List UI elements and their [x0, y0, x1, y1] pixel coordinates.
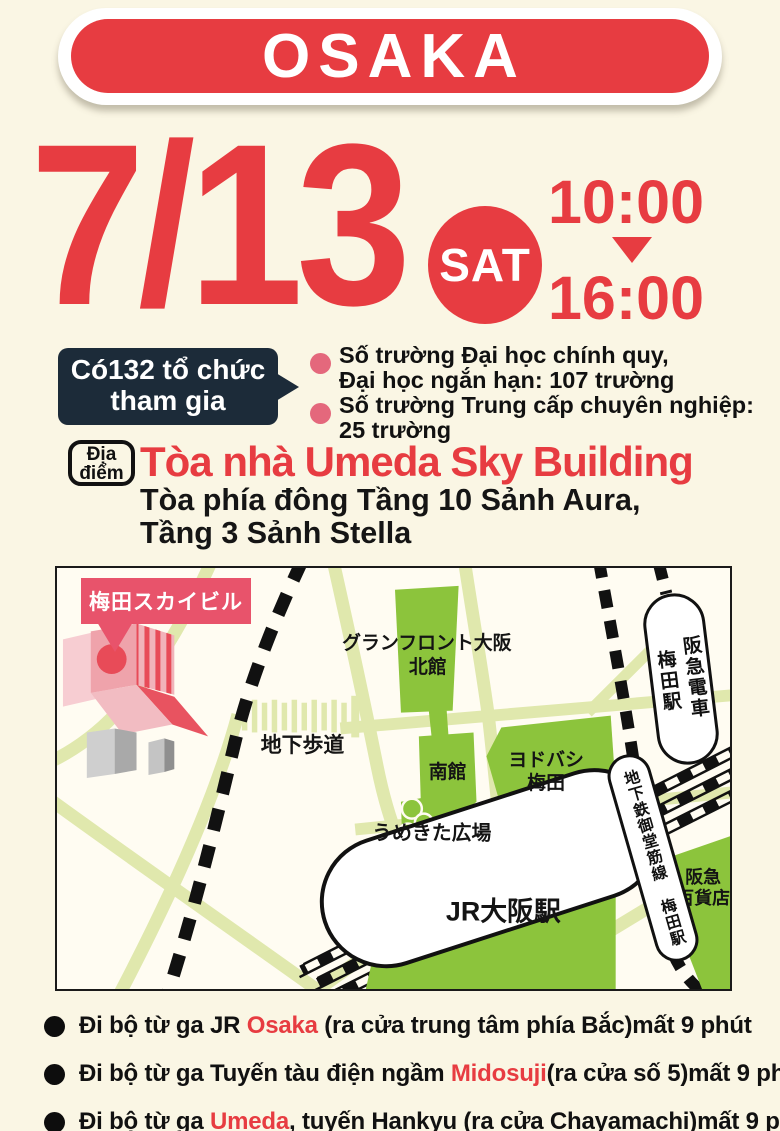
stat-text: Số trường Đại học chính quy, Đại học ngắ… [339, 343, 674, 393]
venue-badge-line1: Địa [72, 445, 131, 464]
grand-front-label: グランフロント大阪 [342, 631, 511, 653]
flyer-page: OSAKA 7/13 SAT 10:00 16:00 Có132 tổ chức… [0, 0, 780, 1131]
bullet-dot-icon [44, 1016, 65, 1037]
access-post: , tuyến Hankyu (ra cửa Chayamachi)mất 9 … [289, 1108, 780, 1131]
venue-badge: Địa điểm [68, 440, 135, 486]
jr-osaka-station-label: JR大阪駅 [446, 897, 561, 927]
list-item: Đi bộ từ ga Tuyến tàu điện ngầm Midosuji… [44, 1050, 780, 1098]
yodobashi-label-line2: 梅田 [527, 771, 565, 793]
badge-pointer-icon [276, 373, 299, 401]
access-text: Đi bộ từ ga JR Osaka (ra cửa trung tâm p… [79, 1012, 752, 1040]
access-pre: Đi bộ từ ga JR [79, 1012, 247, 1039]
bullet-dot-icon [44, 1112, 65, 1131]
hankyu-station-label: 阪急電車 梅田駅 [649, 634, 713, 724]
access-highlight: Osaka [247, 1012, 318, 1039]
weekday-badge: SAT [428, 206, 542, 324]
sky-building-pointer-icon [97, 622, 133, 652]
venue-name: Tòa nhà Umeda Sky Building [140, 438, 693, 486]
bullet-dot-icon [310, 403, 331, 424]
sky-building-label: 梅田スカイビル [81, 578, 251, 624]
venue-badge-line2: điểm [72, 464, 131, 483]
list-item: Số trường Trung cấp chuyên nghiệp: 25 tr… [310, 393, 778, 443]
access-pre: Đi bộ từ ga [79, 1108, 210, 1131]
weekday-label: SAT [439, 238, 531, 292]
access-post: (ra cửa số 5)mất 9 phút [547, 1060, 780, 1087]
stat-line: Số trường Đại học chính quy, [339, 343, 674, 368]
event-date: 7/13 [30, 110, 404, 340]
arrow-down-icon [612, 237, 652, 263]
osaka-banner: OSAKA [58, 8, 722, 105]
school-stats: Số trường Đại học chính quy, Đại học ngắ… [310, 343, 778, 443]
access-text: Đi bộ từ ga Tuyến tàu điện ngầm Midosuji… [79, 1060, 780, 1088]
osaka-banner-plate: OSAKA [71, 19, 709, 93]
stat-text: Số trường Trung cấp chuyên nghiệp: 25 tr… [339, 393, 754, 443]
participants-badge: Có132 tổ chức tham gia [58, 348, 278, 425]
access-highlight: Umeda [210, 1108, 289, 1131]
list-item: Số trường Đại học chính quy, Đại học ngắ… [310, 343, 778, 393]
stat-line: Số trường Trung cấp chuyên nghiệp: [339, 393, 754, 418]
participants-badge-line1: Có132 tổ chức [58, 354, 278, 385]
venue-detail: Tòa phía đông Tầng 10 Sảnh Aura, Tầng 3 … [140, 484, 640, 550]
hankyu-dept-label-line1: 阪急 [685, 866, 721, 887]
north-building-label: 北館 [409, 655, 447, 677]
umeda-sky-building-illustration [63, 623, 208, 778]
underpass-label: 地下歩道 [261, 733, 345, 757]
access-highlight: Midosuji [451, 1060, 547, 1087]
south-building-label: 南館 [429, 760, 467, 782]
access-map: グランフロント大阪 北館 南館 ヨドバシ 梅田 地下歩道 うめきた広場 JR大阪… [55, 566, 732, 991]
list-item: Đi bộ từ ga JR Osaka (ra cửa trung tâm p… [44, 1002, 780, 1050]
start-time: 10:00 [548, 172, 704, 233]
umekita-plaza-label: うめきた広場 [372, 821, 491, 844]
access-pre: Đi bộ từ ga Tuyến tàu điện ngầm [79, 1060, 451, 1087]
access-text: Đi bộ từ ga Umeda, tuyến Hankyu (ra cửa … [79, 1108, 780, 1131]
venue-detail-line1: Tòa phía đông Tầng 10 Sảnh Aura, [140, 484, 640, 517]
sky-building-label-text: 梅田スカイビル [89, 586, 243, 616]
bullet-dot-icon [310, 353, 331, 374]
yodobashi-label-line1: ヨドバシ [508, 749, 584, 770]
venue-detail-line2: Tầng 3 Sảnh Stella [140, 517, 640, 550]
bullet-dot-icon [44, 1064, 65, 1085]
access-post: (ra cửa trung tâm phía Bắc)mất 9 phút [318, 1012, 752, 1039]
participants-badge-line2: tham gia [58, 385, 278, 416]
access-list: Đi bộ từ ga JR Osaka (ra cửa trung tâm p… [44, 1002, 780, 1131]
end-time: 16:00 [548, 268, 704, 329]
stat-line: Đại học ngắn hạn: 107 trường [339, 368, 674, 393]
list-item: Đi bộ từ ga Umeda, tuyến Hankyu (ra cửa … [44, 1098, 780, 1131]
city-title: OSAKA [254, 21, 526, 92]
